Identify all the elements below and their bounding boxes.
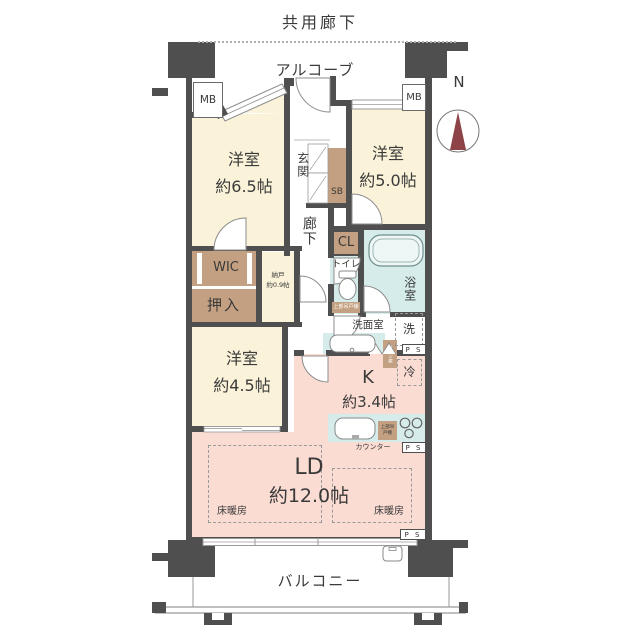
bedroom-5.0-name: 洋室 [359,144,417,164]
washer-label: 洗 [395,315,423,344]
entry-closet-panels [308,144,328,203]
pipe-space-1-label: P S [406,346,423,354]
window-ld-bottom [203,539,417,546]
floor-plan: 共用廊下 アルコーブ N MB MB 玄関 SB 廊下 CL トイレ 上部吊戸棚… [0,0,640,640]
ld-size-label: 約12.0帖 [262,485,356,509]
kitchen-sink-icon [335,418,375,439]
meter-box-right: MB [402,84,426,111]
alcove-label: アルコーブ [245,61,385,79]
pipe-space-2: P S [402,442,426,453]
balcony-label: バルコニー [258,571,382,591]
hallway-label: 廊下 [299,206,317,256]
stove-burners-icon [400,418,422,437]
nando-door-arc [300,276,326,302]
bedroom-5.0-size: 約5.0帖 [350,171,426,191]
meter-box-left: MB [193,82,223,118]
compass-icon [437,110,479,152]
fridge-label: 冷 [397,361,422,384]
bath-door-arc [364,286,390,312]
bedroom-4.5-size: 約4.5帖 [200,376,284,396]
floor-heating-right-label: 床暖房 [368,505,410,519]
washbasin-icon [330,335,375,352]
bedroom-6.5-door-arc [214,218,246,250]
bedroom-6.5-name: 洋室 [214,150,274,170]
counter-label: カウンター [342,443,404,453]
kitchen-label: K [353,366,383,390]
bedroom-5.0-door-arc [352,194,382,224]
floor-heating-left-label: 床暖房 [211,505,253,519]
pipe-space-3-label: P S [405,531,422,539]
north-label: N [445,74,473,90]
nando-label: 納戸 [262,271,294,281]
common-corridor-boundary [198,41,456,43]
kitchen-shelf-label: 上部吊戸棚 [379,422,396,439]
washroom-label: 洗面室 [336,319,400,332]
wic-label: WIC [202,257,250,279]
shoe-box-label: SB [328,186,346,198]
bedroom-6.5-size: 約6.5帖 [202,177,286,197]
linen-label: リネン庫 [384,341,396,367]
cl-label: CL [332,231,360,255]
oshiire-label: 押入 [196,294,252,316]
pipe-space-2-label: P S [406,444,423,452]
corridor-ld-door-arc [302,356,328,382]
bathtub-icon [369,235,423,266]
bath-label: 浴室 [400,268,418,310]
toilet-label: トイレ [330,259,362,271]
toilet-icon [339,271,356,300]
plan-linework [0,0,640,640]
entry-door-arc [296,78,330,112]
entrance-label: 玄関 [294,142,310,188]
nando-size-label: 約0.9帖 [262,281,294,291]
bedroom-4.5-name: 洋室 [212,349,272,369]
common-corridor-label: 共用廊下 [240,13,400,33]
balcony-sink-icon [383,546,402,561]
pipe-space-3: P S [400,529,426,540]
toilet-shelf-label: 上部吊戸棚 [332,303,360,312]
pipe-space-1: P S [402,344,426,355]
ld-label: LD [283,455,335,481]
sliding-door-4.5-ld [204,427,280,433]
meter-box-left-label: MB [200,94,216,106]
meter-box-right-label: MB [406,92,422,103]
kitchen-size-label: 約3.4帖 [337,392,401,412]
